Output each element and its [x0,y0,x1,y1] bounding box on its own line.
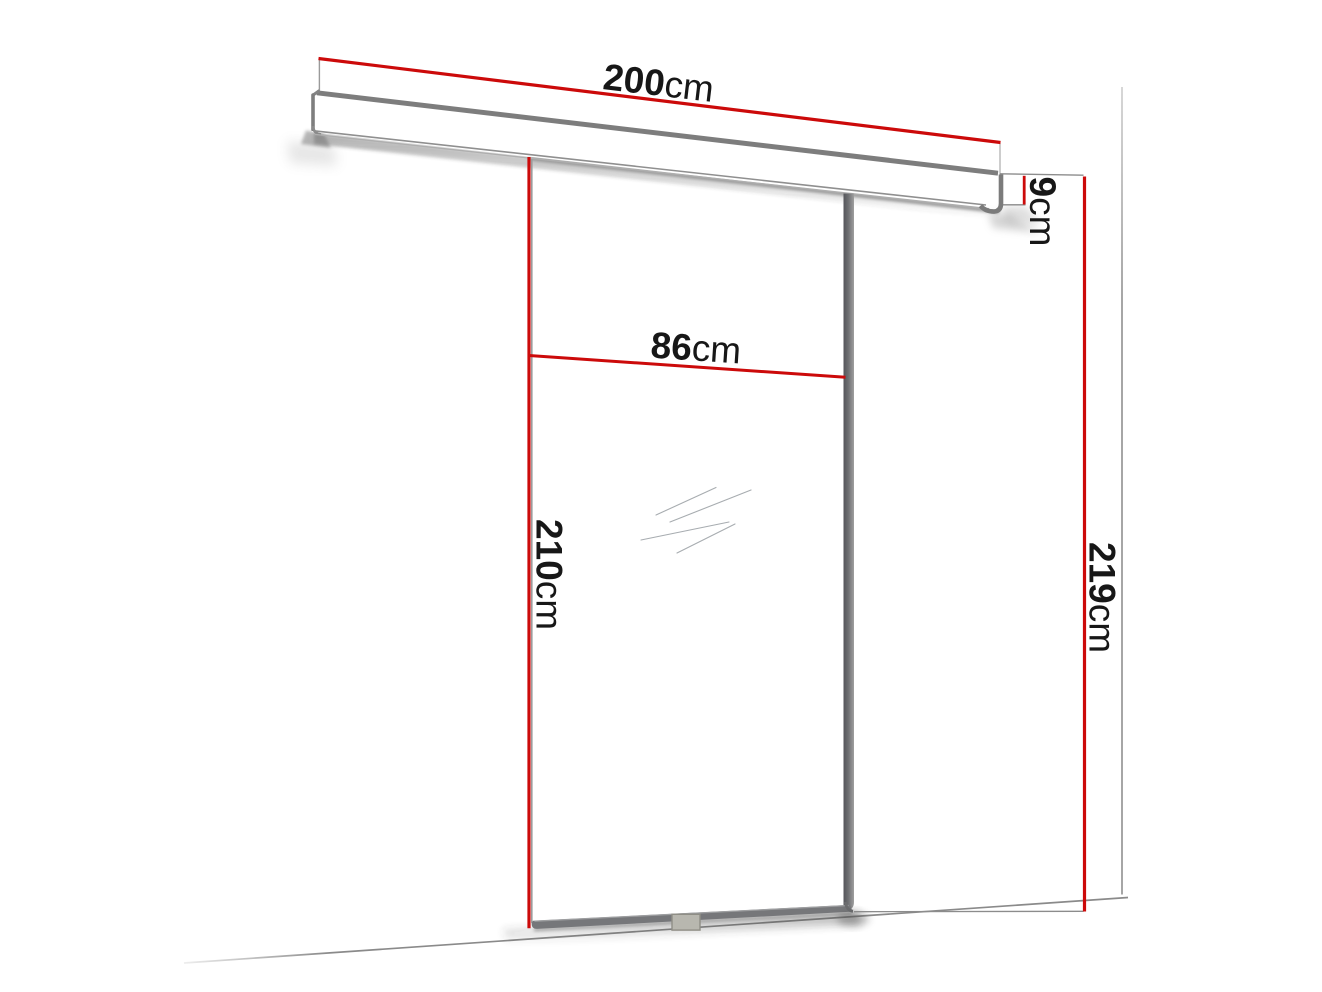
svg-text:219cm: 219cm [1082,542,1123,653]
svg-text:86cm: 86cm [649,325,742,372]
svg-text:210cm: 210cm [529,519,570,630]
svg-text:9cm: 9cm [1022,177,1063,247]
